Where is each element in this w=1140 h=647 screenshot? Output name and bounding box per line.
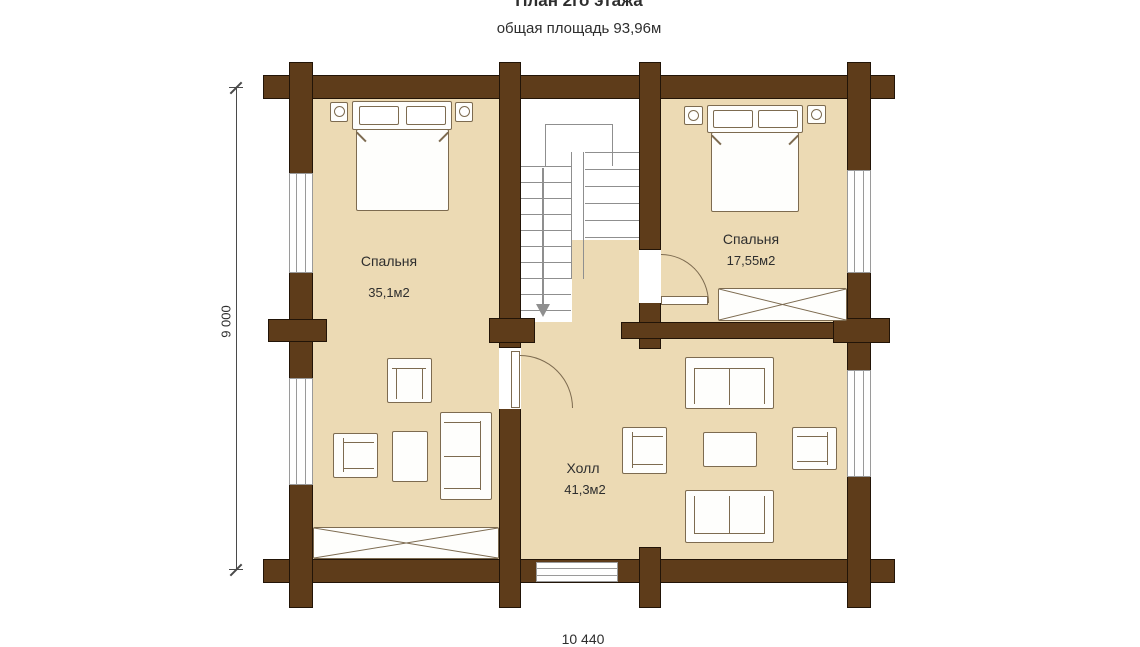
wall-interior-a-upper: [499, 62, 521, 348]
sofa: [685, 490, 774, 543]
lamp-icon: [811, 109, 822, 120]
door-leaf-bedroom-right: [661, 296, 708, 305]
window-glazing: [296, 174, 306, 272]
page-title: План 2го этажа: [263, 0, 895, 11]
furniture-line: [764, 368, 765, 404]
wardrobe-cross-icon: [314, 528, 498, 558]
armchair: [792, 427, 837, 470]
pillow: [406, 106, 446, 125]
furniture-line: [694, 496, 695, 534]
stair-step: [521, 262, 571, 263]
stair-step: [521, 246, 571, 247]
room-label-hall: Холл: [523, 460, 643, 476]
blanket-fold: [788, 135, 798, 145]
room-label-bedroom-left: Спальня: [329, 253, 449, 269]
bed-headboard: [352, 101, 452, 130]
nightstand: [455, 102, 473, 122]
furniture-line: [764, 496, 765, 534]
furniture-line: [396, 368, 397, 399]
pillow: [758, 110, 798, 128]
stair-divider: [571, 152, 584, 279]
wall-log-cross-bottom: [639, 547, 661, 608]
pillow: [359, 106, 399, 125]
room-area-bedroom-right: 17,55м2: [691, 253, 811, 268]
dimension-line-left: [236, 88, 237, 570]
door-opening-bedroom-right: [639, 250, 661, 303]
lamp-icon: [688, 110, 699, 121]
door-leaf-bedroom-left: [511, 351, 520, 408]
stair-step: [521, 294, 571, 295]
wardrobe: [718, 288, 847, 321]
coffee-table: [703, 432, 757, 467]
wall-top: [263, 75, 895, 99]
nightstand: [807, 105, 826, 124]
wardrobe-cross-icon: [719, 289, 846, 320]
stair-direction-line: [542, 168, 544, 306]
furniture-line: [444, 456, 481, 457]
window-glazing: [854, 171, 864, 272]
stair-step: [585, 186, 639, 187]
furniture-line: [343, 468, 374, 469]
pillow: [713, 110, 753, 128]
wall-middle: [621, 322, 847, 339]
blanket-fold: [356, 132, 366, 142]
dimension-label-height: 9 000: [219, 290, 234, 354]
furniture-line: [797, 461, 828, 462]
stair-step: [585, 220, 639, 221]
furniture-line: [632, 436, 663, 437]
bed-blanket: [711, 132, 799, 212]
stair-step: [521, 230, 571, 231]
armchair: [387, 358, 432, 403]
stair-step: [521, 198, 571, 199]
window-glazing: [854, 371, 864, 476]
stair-down-arrow-icon: [536, 304, 550, 317]
furniture-line: [729, 368, 730, 405]
window-glazing: [537, 568, 617, 576]
furniture-line: [422, 368, 423, 399]
stair-step: [585, 169, 639, 170]
window-glazing: [296, 379, 306, 484]
wall-log-cross-left: [268, 319, 327, 342]
furniture-line: [343, 442, 374, 443]
room-area-bedroom-left: 35,1м2: [329, 285, 449, 300]
armchair: [333, 433, 378, 478]
wall-interior-a-lower: [499, 408, 521, 608]
window-right-lower: [847, 370, 871, 477]
side-table: [392, 431, 428, 482]
stair-step: [585, 152, 639, 153]
bed-blanket: [356, 129, 449, 211]
total-area-subtitle: общая площадь 93,96м: [263, 20, 895, 37]
nightstand: [330, 102, 348, 122]
blanket-fold: [711, 135, 721, 145]
stair-step: [521, 166, 571, 167]
sofa: [685, 357, 774, 409]
wall-log-cross-center: [489, 318, 535, 343]
wall-interior-b-upper: [639, 62, 661, 250]
stair-step: [521, 182, 571, 183]
dimension-label-width: 10 440: [523, 631, 643, 647]
room-label-bedroom-right: Спальня: [691, 231, 811, 247]
room-area-hall: 41,3м2: [525, 482, 645, 497]
lamp-icon: [334, 106, 345, 117]
wall-log-cross-right: [833, 318, 890, 343]
bed-headboard: [707, 105, 803, 133]
window-right-upper: [847, 170, 871, 273]
furniture-line: [729, 496, 730, 534]
window-left-upper: [289, 173, 313, 273]
stair-step: [521, 278, 571, 279]
furniture-line: [444, 422, 481, 423]
stair-step: [585, 237, 639, 238]
sofa-vertical: [440, 412, 492, 500]
furniture-line: [797, 436, 828, 437]
furniture-line: [343, 438, 344, 472]
stair-step: [521, 214, 571, 215]
furniture-line: [694, 368, 695, 404]
stair-step: [585, 203, 639, 204]
lamp-icon: [459, 106, 470, 117]
window-left-lower: [289, 378, 313, 485]
furniture-line: [392, 368, 426, 369]
blanket-fold: [438, 132, 448, 142]
nightstand: [684, 106, 703, 125]
wardrobe: [313, 527, 499, 559]
window-bottom: [536, 562, 618, 582]
furniture-line: [444, 488, 481, 489]
